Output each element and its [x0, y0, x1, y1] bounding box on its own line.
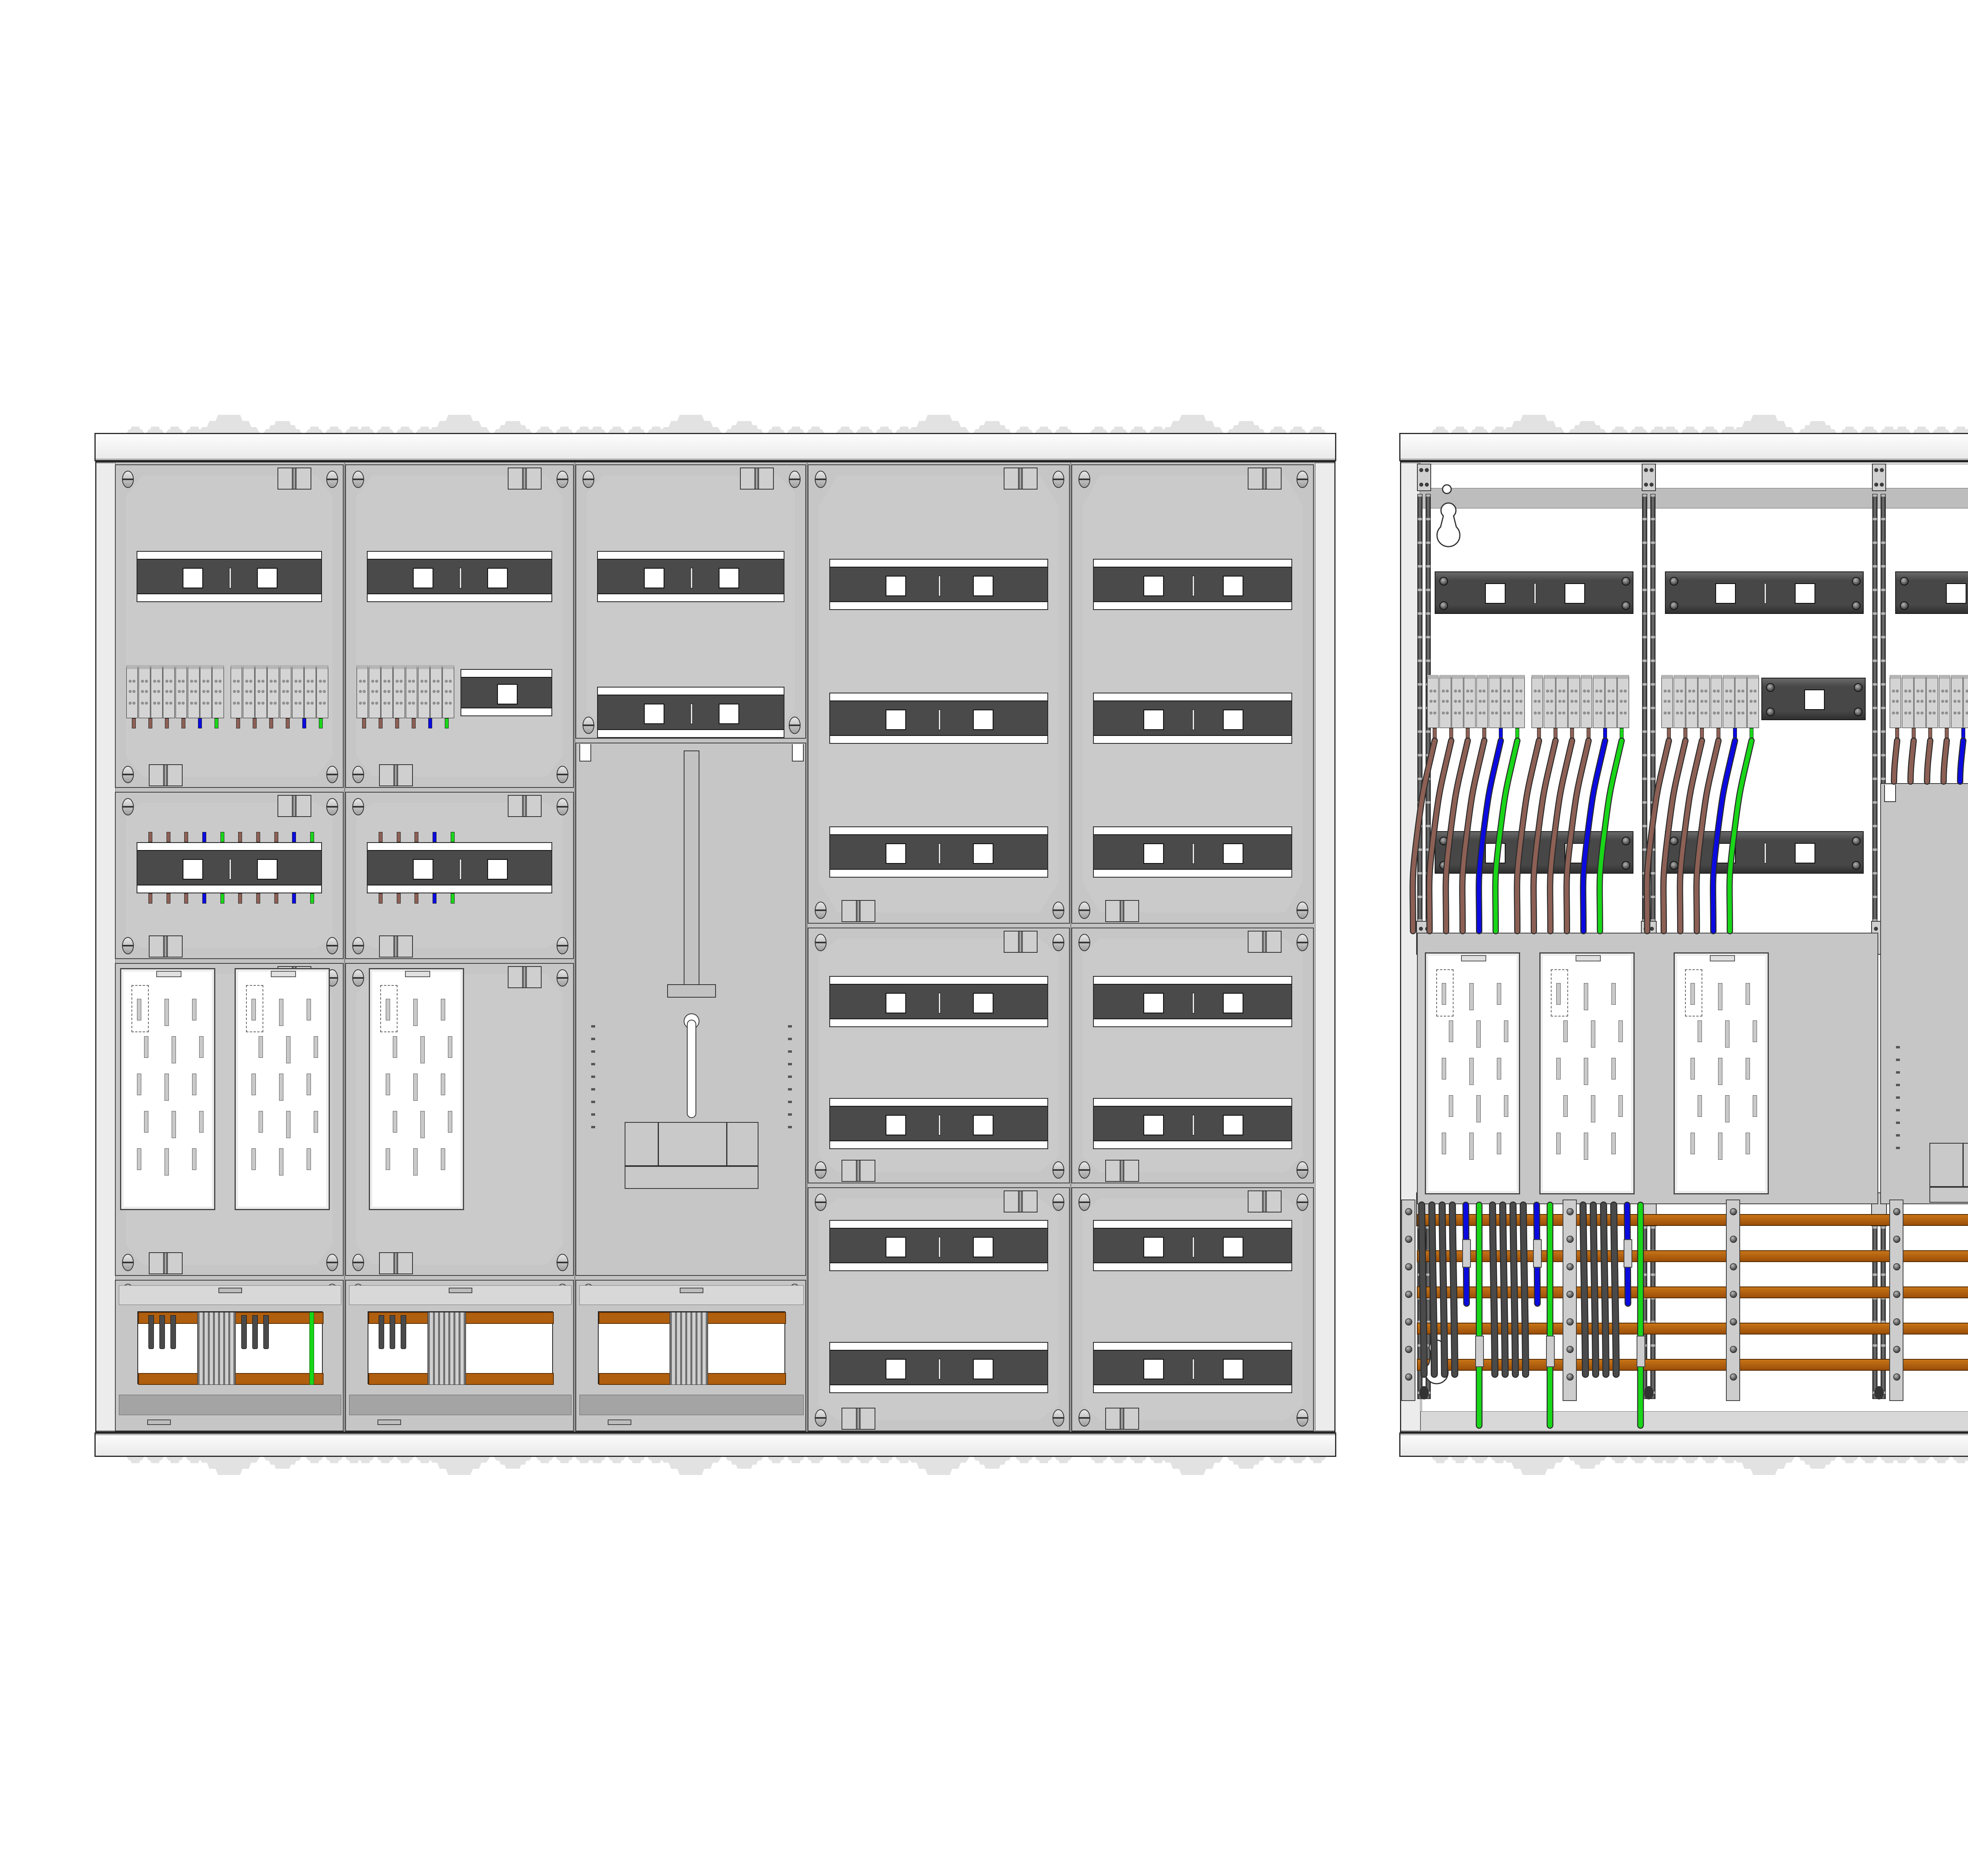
- terminal-block: [1890, 675, 1901, 728]
- busbar-support: [1726, 1200, 1740, 1401]
- busbar: [1417, 1214, 1968, 1226]
- vent-bump: [1611, 427, 1628, 433]
- rail-slit: [1534, 583, 1536, 604]
- meter-plate-slot: [1469, 1133, 1474, 1160]
- meter-plate-slot: [1591, 1020, 1595, 1048]
- support-screw: [1730, 1291, 1737, 1298]
- meter-plate-slot: [1753, 1020, 1757, 1042]
- meter-plate-slot: [1504, 1020, 1508, 1042]
- meter-plate-slot: [1718, 1133, 1722, 1160]
- din-rail: [1761, 678, 1866, 720]
- wire-stub: [1716, 728, 1720, 738]
- meter-plate-slot: [1584, 983, 1588, 1010]
- support-screw: [1730, 1373, 1737, 1381]
- switch-actuator-row: [1929, 1187, 1968, 1203]
- terminal-block: [1939, 675, 1951, 728]
- terminal-block: [1747, 675, 1759, 728]
- profile-foot: [1874, 1386, 1884, 1399]
- busbar-support: [1401, 1200, 1415, 1401]
- torx-screw: [1900, 577, 1909, 586]
- support-screw: [1405, 1373, 1412, 1381]
- terminal-block: [1914, 675, 1926, 728]
- din-rail: [1435, 831, 1633, 874]
- meter-plate-slot: [1476, 1020, 1481, 1048]
- terminal-block: [1661, 675, 1673, 728]
- wire-stub: [1433, 728, 1437, 738]
- rail-window: [1946, 583, 1966, 604]
- busbar: [1417, 1323, 1968, 1334]
- rail-window: [1715, 843, 1736, 863]
- torx-screw: [1670, 837, 1678, 845]
- busbar: [1417, 1250, 1968, 1262]
- meter-plate-slot: [1611, 1133, 1616, 1154]
- rail-window: [1795, 583, 1815, 604]
- wire-stub: [1499, 728, 1503, 738]
- din-rail: [1435, 571, 1633, 614]
- vent-bump: [1471, 1457, 1488, 1463]
- rail-slit: [1534, 843, 1536, 863]
- support-screw: [1893, 1346, 1900, 1353]
- terminal-block-group: [1531, 675, 1630, 728]
- wire-stub: [1466, 728, 1470, 738]
- vent-bump: [1568, 421, 1606, 433]
- meter-plate-slot: [1725, 1020, 1729, 1048]
- support-screw: [1893, 1318, 1900, 1325]
- meter-plate-slot: [1504, 1095, 1508, 1117]
- wire-stub: [1733, 728, 1737, 738]
- support-screw: [1405, 1236, 1412, 1243]
- vent-bump: [1701, 427, 1718, 433]
- profile-hanger: [1417, 464, 1431, 491]
- wire-stub: [1620, 728, 1624, 738]
- rail-window: [1485, 583, 1506, 604]
- meter-plate-slot: [1718, 983, 1722, 1010]
- torx-screw: [1622, 577, 1630, 586]
- meter-plate-slot: [1476, 1095, 1481, 1122]
- wire-stub: [1570, 728, 1574, 738]
- wire-stub: [1482, 728, 1486, 738]
- vent-bump: [1701, 1457, 1718, 1463]
- profile-hanger: [1872, 464, 1886, 491]
- vent-bump: [1841, 1457, 1858, 1463]
- meter-plate-slot: [1563, 1095, 1568, 1117]
- vent-bump: [1733, 415, 1795, 433]
- meter-mounting-plate: [1539, 952, 1635, 1194]
- torx-screw: [1439, 861, 1448, 870]
- terminal-block: [1686, 675, 1698, 728]
- vent-bump: [1913, 1457, 1930, 1463]
- vent-bump: [1799, 421, 1837, 433]
- terminal-block: [1568, 675, 1580, 728]
- wire-stub: [1683, 728, 1687, 738]
- rail-window: [1795, 843, 1815, 863]
- vent-bump: [1662, 1457, 1679, 1463]
- support-screw: [1893, 1291, 1900, 1298]
- profile-foot: [1419, 1386, 1429, 1399]
- rail-window: [1565, 843, 1585, 863]
- vent-bump: [1933, 1457, 1950, 1463]
- terminal-block: [1531, 675, 1543, 728]
- torx-screw: [1622, 837, 1630, 845]
- wire-stub: [1945, 728, 1949, 738]
- vent-bump: [1503, 1457, 1565, 1475]
- vent-bump: [1630, 1457, 1648, 1463]
- terminal-block: [1476, 675, 1488, 728]
- torx-screw: [1766, 708, 1775, 716]
- meter-plate-slot: [1497, 1058, 1501, 1079]
- vent-bump: [1503, 415, 1565, 433]
- vent-bump: [1861, 1457, 1878, 1463]
- panel-hook: [1884, 785, 1896, 802]
- terminal-block: [1951, 675, 1963, 728]
- vent-bump: [1568, 1457, 1606, 1469]
- vent-bump: [1799, 1457, 1837, 1469]
- rail-slit: [1764, 583, 1766, 604]
- din-rail: [1665, 831, 1864, 874]
- torx-screw: [1854, 683, 1863, 692]
- wire-stub: [1587, 728, 1591, 738]
- wire-stub: [1750, 728, 1753, 738]
- meter-plate-slot: [1556, 1133, 1561, 1154]
- meter-plate-slot: [1691, 1133, 1695, 1154]
- meter-plate-slot: [1591, 1095, 1595, 1122]
- torx-screw: [1622, 601, 1630, 610]
- wire-stub: [1537, 728, 1541, 738]
- wire-stub: [1912, 728, 1916, 738]
- vent-bump: [1451, 1457, 1469, 1463]
- terminal-block: [1452, 675, 1463, 728]
- meter-plate-slot: [1449, 1095, 1453, 1117]
- perforation-strip: [1896, 1036, 1900, 1150]
- torx-screw: [1852, 861, 1861, 870]
- meter-plate-clip: [1461, 955, 1486, 961]
- profile-foot: [1644, 1386, 1654, 1399]
- support-screw: [1405, 1263, 1412, 1270]
- support-screw: [1405, 1346, 1412, 1353]
- meter-plate-slot: [1469, 983, 1474, 1010]
- meter-plate-slot: [1691, 1058, 1695, 1079]
- meter-plate-slot: [1556, 1058, 1561, 1079]
- din-rail: [1665, 571, 1864, 614]
- meter-plate-slot: [1497, 1133, 1501, 1154]
- vent-bump: [1933, 427, 1950, 433]
- terminal-block-group: [1661, 675, 1759, 728]
- torx-screw: [1670, 601, 1678, 610]
- meter-plate-slot: [1746, 1058, 1750, 1079]
- rail-window: [1565, 583, 1585, 604]
- torx-screw: [1852, 601, 1861, 610]
- torx-screw: [1622, 861, 1630, 870]
- support-screw: [1567, 1236, 1574, 1243]
- wire-stub: [1603, 728, 1607, 738]
- wire-stub: [1928, 728, 1932, 738]
- meter-plate-slot: [1753, 1095, 1757, 1117]
- meter-plate-slot: [1442, 1058, 1446, 1079]
- vent-bump: [1893, 1457, 1911, 1463]
- main-switch-panel: [1880, 783, 1968, 1204]
- torx-screw: [1670, 861, 1678, 870]
- meter-plate-slot: [1469, 1058, 1474, 1085]
- support-screw: [1567, 1318, 1574, 1325]
- terminal-block: [1926, 675, 1938, 728]
- terminal-block: [1617, 675, 1629, 728]
- vent-bump: [1432, 1457, 1449, 1463]
- wire-stub: [1449, 728, 1453, 738]
- vent-bump: [1432, 427, 1449, 433]
- busbar-support: [1563, 1200, 1577, 1401]
- support-screw: [1730, 1346, 1737, 1353]
- meter-plate-clip: [1576, 955, 1601, 961]
- torx-screw: [1766, 683, 1775, 692]
- terminal-block: [1698, 675, 1710, 728]
- busbar-support: [1889, 1200, 1903, 1401]
- drawing-canvas: N 1 2 3 4 5 6 7 8 9 10 11 12 13N 1 2 3 4…: [0, 0, 1968, 1876]
- torx-screw: [1439, 601, 1448, 610]
- busbar: [1417, 1286, 1968, 1298]
- switch-actuator-divider: [1962, 1144, 1964, 1188]
- terminal-block: [1427, 675, 1439, 728]
- vent-bump: [1662, 427, 1679, 433]
- meter-plate-slot: [1618, 1095, 1623, 1117]
- meter-mounting-plate: [1425, 952, 1520, 1194]
- terminal-block: [1735, 675, 1747, 728]
- support-screw: [1405, 1318, 1412, 1325]
- meter-plate-slot: [1746, 983, 1750, 1005]
- cabinet-bottom-rim: [1399, 1432, 1968, 1457]
- rail-window: [1715, 583, 1736, 604]
- cabinet-internal-view: N 1 2 3 4 5 6 7 8 9 10 11 12 13N 1 2 3 4…: [0, 0, 1968, 1876]
- terminal-block: [1674, 675, 1685, 728]
- cabinet-top-rim: [1399, 433, 1968, 461]
- support-screw: [1567, 1208, 1574, 1215]
- support-screw: [1893, 1373, 1900, 1381]
- wire-stub: [1895, 728, 1899, 738]
- torx-screw: [1439, 837, 1448, 845]
- meter-plate-slot: [1725, 1095, 1729, 1122]
- support-screw: [1567, 1263, 1574, 1270]
- vent-bump: [1471, 427, 1488, 433]
- vent-bump: [1733, 1457, 1795, 1475]
- meter-plate-slot: [1718, 1058, 1722, 1085]
- terminal-block: [1723, 675, 1735, 728]
- support-screw: [1567, 1373, 1574, 1381]
- support-screw: [1405, 1291, 1412, 1298]
- meter-plate-slot: [1449, 1020, 1453, 1042]
- support-screw: [1567, 1346, 1574, 1353]
- terminal-block: [1902, 675, 1914, 728]
- meter-plate-slot: [1618, 1020, 1623, 1042]
- meter-mounting-plate: [1674, 952, 1769, 1194]
- meter-plate-slot: [1497, 983, 1501, 1005]
- meter-plate-slot: [1442, 983, 1446, 1005]
- meter-plate-slot: [1746, 1133, 1750, 1154]
- meter-plate-slot: [1611, 1058, 1616, 1079]
- vent-bump: [1841, 427, 1858, 433]
- vent-bump: [1893, 427, 1911, 433]
- terminal-block: [1963, 675, 1968, 728]
- terminal-block: [1489, 675, 1500, 728]
- support-screw: [1893, 1236, 1900, 1243]
- terminal-block-group: [1427, 675, 1525, 728]
- terminal-block: [1711, 675, 1722, 728]
- terminal-block: [1544, 675, 1556, 728]
- wire-stub: [1667, 728, 1671, 738]
- busbar: [1417, 1359, 1968, 1371]
- meter-plate-slot: [1698, 1095, 1702, 1117]
- vent-bump: [1681, 427, 1699, 433]
- meter-plate-slot: [1556, 983, 1561, 1005]
- torx-screw: [1900, 601, 1909, 610]
- torx-screw: [1670, 577, 1678, 586]
- terminal-block: [1605, 675, 1617, 728]
- meter-plate-slot: [1584, 1058, 1588, 1085]
- torx-screw: [1439, 577, 1448, 586]
- meter-plate-slot: [1698, 1020, 1702, 1042]
- vent-bump: [1630, 427, 1648, 433]
- wire-stub: [1515, 728, 1519, 738]
- support-screw: [1730, 1263, 1737, 1270]
- wire-stub: [1961, 728, 1965, 738]
- torx-screw: [1852, 577, 1861, 586]
- vent-bump: [1611, 1457, 1628, 1463]
- rail-window: [1485, 843, 1506, 863]
- torx-screw: [1854, 708, 1863, 716]
- meter-plate-slot: [1442, 1133, 1446, 1154]
- support-screw: [1567, 1291, 1574, 1298]
- support-screw: [1730, 1208, 1737, 1215]
- support-screw: [1405, 1208, 1412, 1215]
- terminal-block-group: [1889, 675, 1968, 728]
- profile-hanger: [1642, 464, 1656, 491]
- terminal-block: [1581, 675, 1593, 728]
- vent-bump: [1913, 427, 1930, 433]
- vent-bump: [1861, 427, 1878, 433]
- wire-stub: [1700, 728, 1704, 738]
- din-rail: [1895, 571, 1968, 614]
- rail-slit: [1764, 843, 1766, 863]
- bottom-strip: [1421, 1411, 1968, 1431]
- meter-plate-clip: [1710, 955, 1735, 961]
- terminal-block: [1556, 675, 1568, 728]
- support-screw: [1730, 1236, 1737, 1243]
- terminal-block: [1513, 675, 1525, 728]
- terminal-block: [1464, 675, 1476, 728]
- terminal-block: [1439, 675, 1451, 728]
- rail-window: [1804, 689, 1825, 710]
- switch-actuator: [1929, 1143, 1968, 1187]
- vent-bump: [1451, 427, 1469, 433]
- meter-plate-slot: [1691, 983, 1695, 1005]
- terminal-block: [1501, 675, 1513, 728]
- support-screw: [1893, 1263, 1900, 1270]
- vent-bump: [1681, 1457, 1699, 1463]
- meter-plate-slot: [1563, 1020, 1568, 1042]
- support-screw: [1893, 1208, 1900, 1215]
- meter-plate-slot: [1584, 1133, 1588, 1160]
- meter-plate-slot: [1611, 983, 1616, 1005]
- terminal-block: [1593, 675, 1605, 728]
- torx-screw: [1852, 837, 1861, 845]
- wire-stub: [1554, 728, 1557, 738]
- support-screw: [1730, 1318, 1737, 1325]
